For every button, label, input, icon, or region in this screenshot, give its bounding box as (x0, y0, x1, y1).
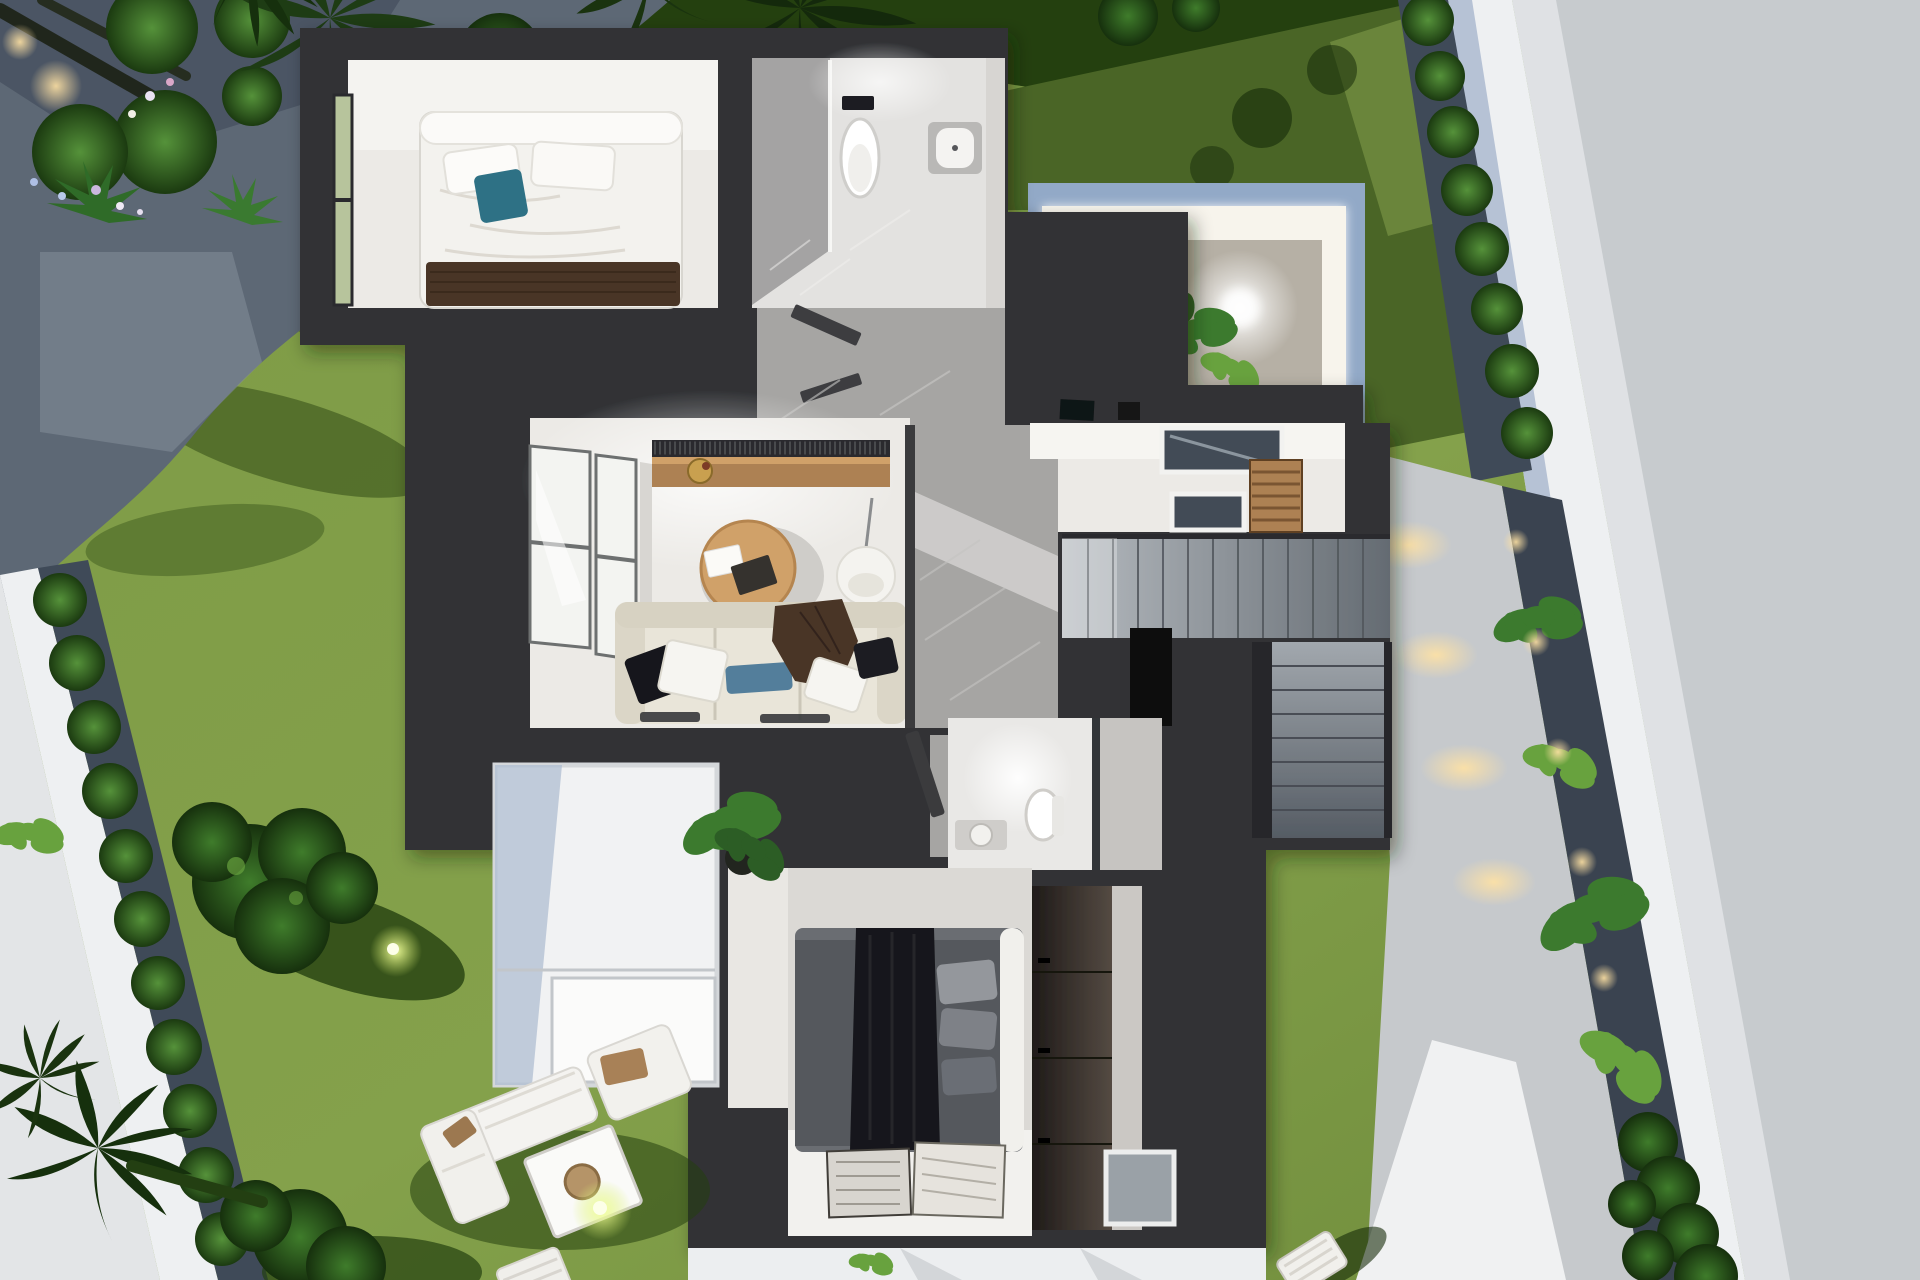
leaf-shadow (1307, 45, 1357, 95)
wardrobe-handle (1038, 1048, 1050, 1053)
master-bedroom (728, 868, 1174, 1236)
path-light (1394, 631, 1478, 679)
accent-light (1590, 964, 1618, 992)
bottom-pavement (688, 1248, 1266, 1280)
black-cabinet (1130, 628, 1172, 726)
flush-plate (842, 96, 874, 110)
floor-mark (640, 712, 700, 722)
roof-beam (1118, 402, 1140, 420)
floor-mark (760, 714, 830, 723)
canopy-highlight (289, 891, 303, 905)
wardrobe-handle (1038, 958, 1050, 963)
skylight (1172, 494, 1244, 530)
hallway (905, 425, 1058, 728)
wc-partition (1092, 718, 1100, 870)
bedroom (334, 60, 718, 308)
hall-partition (905, 425, 915, 728)
floorplan-render: Top-down 3D architectural render of a mo… (0, 0, 1920, 1280)
bed-headboard (420, 112, 682, 144)
bidet-drain (952, 145, 958, 151)
decor-bowl (688, 459, 712, 483)
pillow-gray (941, 1056, 997, 1096)
bathroom (752, 42, 1005, 308)
sofa-back (615, 602, 907, 628)
teal-pillow (473, 168, 529, 224)
lightwell-window (1106, 1152, 1174, 1224)
path-light (1452, 858, 1536, 906)
toilet-seat (848, 144, 872, 192)
living-room (520, 390, 910, 728)
sideboard-highlight (652, 457, 890, 464)
accent-light (1522, 628, 1550, 656)
toilet-tank (1052, 796, 1064, 836)
accent-light (1503, 529, 1529, 555)
accent-light (1544, 738, 1572, 766)
pillow (531, 141, 616, 191)
roof-beam (1059, 399, 1094, 421)
hanging-chair-cushion (848, 573, 884, 597)
pillow-gray (938, 1008, 997, 1051)
pillow-blue (725, 662, 793, 695)
floorplan-canvas: Top-down 3D architectural render of a mo… (0, 0, 1920, 1280)
master-headboard (1000, 928, 1024, 1152)
decor-accent (702, 462, 710, 470)
tree-canopy (306, 852, 378, 924)
master-wall-band (728, 868, 790, 1108)
rug (827, 1149, 911, 1218)
path-light (1420, 744, 1508, 792)
wc-marble-wall (1100, 718, 1162, 870)
garden-bush (222, 66, 282, 126)
garden-lamp (387, 943, 399, 955)
washbasin (970, 824, 992, 846)
stair-wall (1252, 642, 1272, 838)
bed-throw (426, 262, 680, 306)
bathroom-light (808, 42, 952, 122)
garden-bush (32, 104, 128, 200)
pillow-gray (936, 959, 998, 1005)
stair-flight-lower (1272, 642, 1384, 838)
garden-spotlight (2, 24, 38, 60)
wardrobe-handle (1038, 1138, 1050, 1143)
bathroom-wall-edge (986, 58, 1005, 308)
garden-spotlight (30, 60, 82, 112)
garden-lamp (593, 1201, 607, 1215)
stair-wall (1384, 642, 1392, 838)
leaf-shadow (1232, 88, 1292, 148)
guest-bathroom (905, 718, 1162, 870)
canopy-highlight (227, 857, 245, 875)
accent-light (1567, 847, 1597, 877)
garden-bush (113, 90, 217, 194)
stair-light (1062, 538, 1117, 638)
dark-drape (850, 928, 940, 1150)
